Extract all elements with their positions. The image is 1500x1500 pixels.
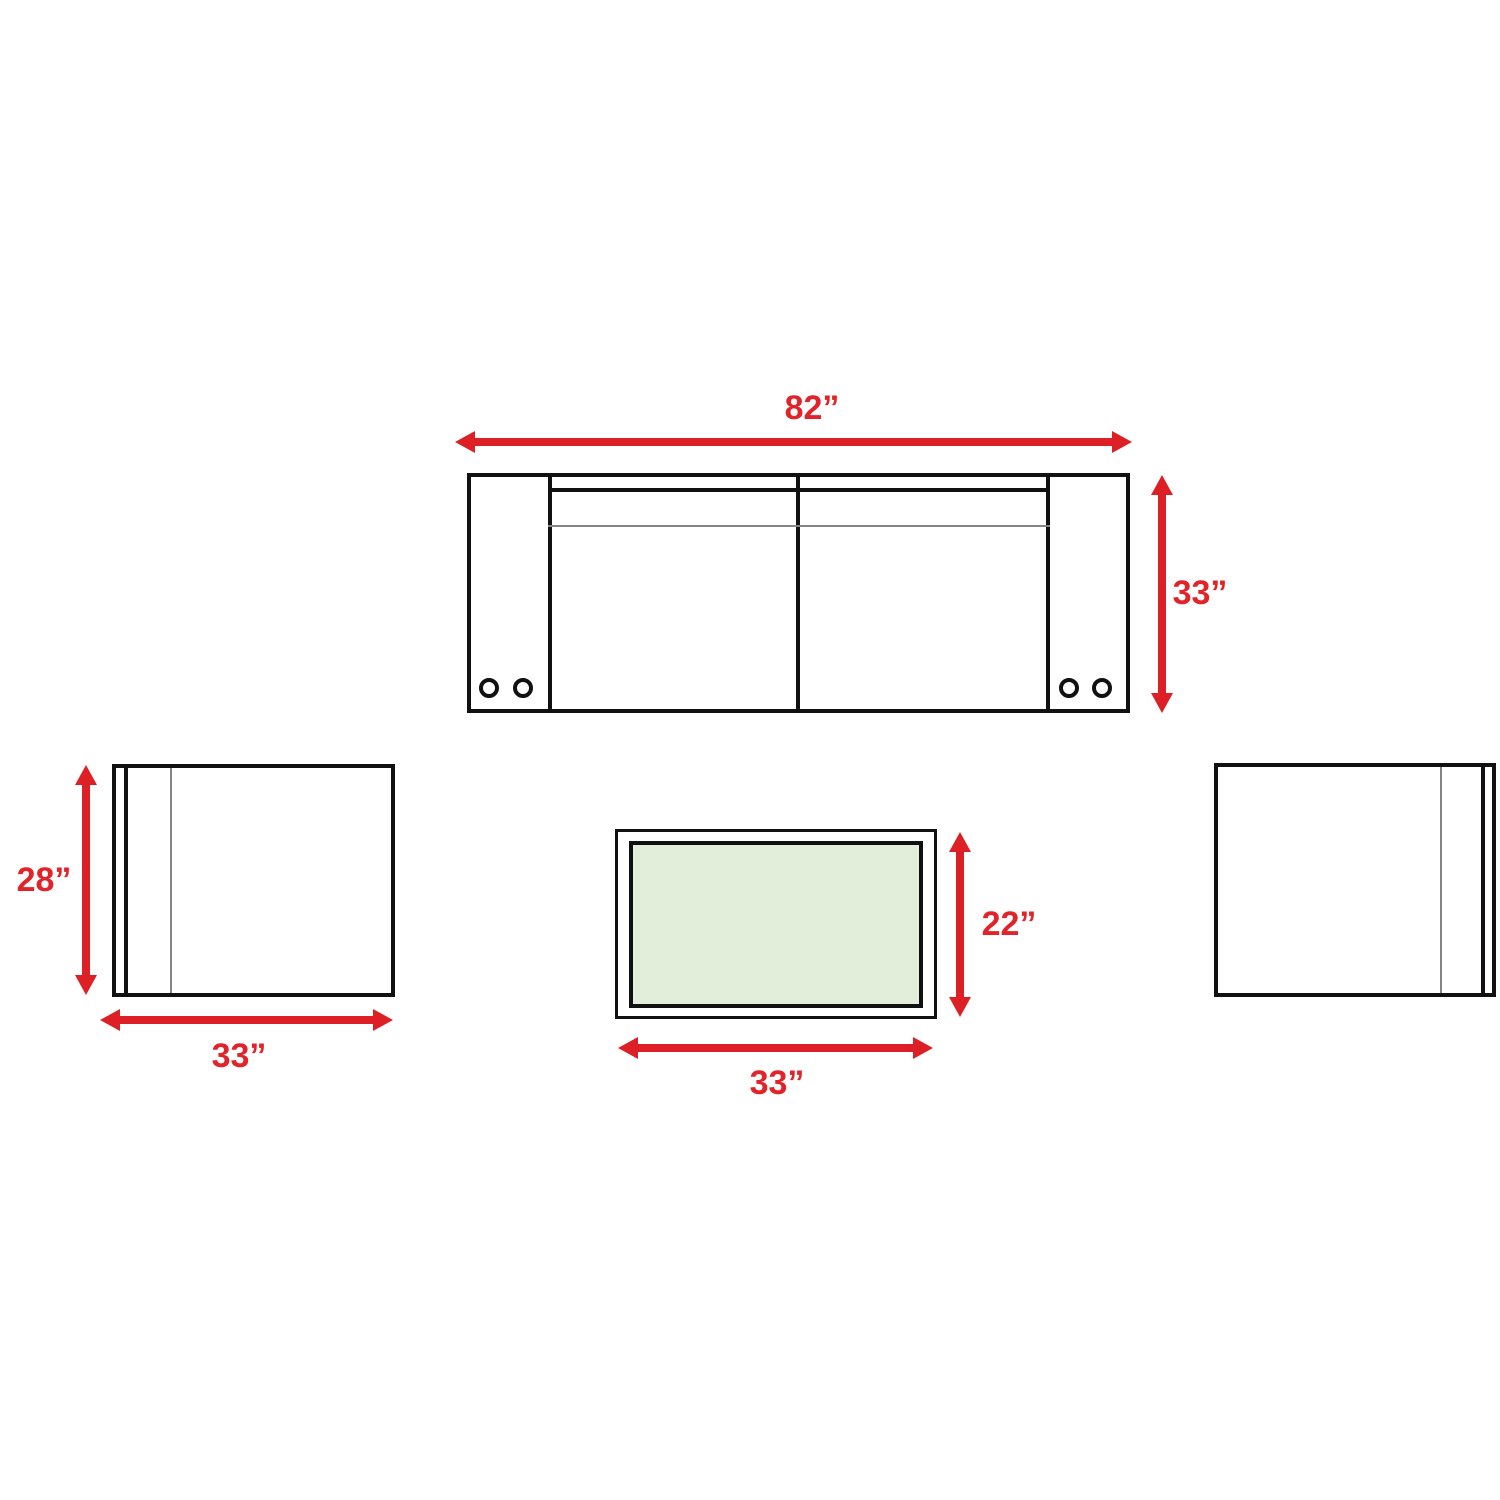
- right-chair-seat-edge-line: [1440, 767, 1442, 993]
- sofa-right-arm-cupholder-2-icon: [1092, 678, 1112, 698]
- sofa-backrest-line: [548, 488, 1050, 492]
- coffee-table-width-label: 33”: [750, 1066, 805, 1100]
- sofa-seat-edge-line: [548, 525, 1050, 527]
- left-chair-width-label: 33”: [212, 1039, 267, 1073]
- arrowhead-up-icon: [1151, 475, 1173, 495]
- arrowhead-up-icon: [949, 832, 971, 852]
- sofa-left-arm-cupholder-1-icon: [479, 678, 499, 698]
- arrowhead-down-icon: [949, 997, 971, 1017]
- sofa-width-dimension-arrow: [455, 431, 1132, 453]
- left-chair-arm-line: [124, 768, 128, 993]
- arrowhead-up-icon: [75, 765, 97, 785]
- left-chair-depth-label: 28”: [17, 863, 72, 897]
- left-chair-seat-edge-line: [170, 768, 172, 993]
- arrowhead-down-icon: [75, 975, 97, 995]
- coffee-table-width-dimension-arrow: [618, 1037, 933, 1059]
- arrowhead-right-icon: [1112, 431, 1132, 453]
- arrowhead-left-icon: [455, 431, 475, 453]
- arrowhead-down-icon: [1151, 693, 1173, 713]
- sofa-right-arm-cupholder-1-icon: [1059, 678, 1079, 698]
- sofa-depth-label: 33”: [1173, 576, 1228, 610]
- sofa-right-arm-line: [1046, 477, 1050, 709]
- sofa-width-label: 82”: [785, 391, 840, 425]
- right-chair-arm-line: [1481, 767, 1485, 993]
- coffee-table-glass-top: [629, 841, 923, 1008]
- arrowhead-right-icon: [373, 1009, 393, 1031]
- sofa-depth-dimension-arrow: [1151, 475, 1173, 713]
- right-chair-top-view: [1214, 763, 1496, 997]
- coffee-table-depth-dimension-arrow: [949, 832, 971, 1017]
- arrowhead-left-icon: [618, 1037, 638, 1059]
- arrowhead-left-icon: [100, 1009, 120, 1031]
- arrowhead-right-icon: [913, 1037, 933, 1059]
- furniture-dimension-diagram: 82” 33” 28” 33” 22” 33”: [0, 0, 1500, 1500]
- sofa-top-view: [467, 473, 1130, 713]
- left-chair-top-view: [112, 764, 395, 997]
- left-chair-width-dimension-arrow: [100, 1009, 393, 1031]
- left-chair-depth-dimension-arrow: [75, 765, 97, 995]
- coffee-table-depth-label: 22”: [982, 907, 1037, 941]
- sofa-left-arm-cupholder-2-icon: [513, 678, 533, 698]
- sofa-seat-divider-line: [796, 477, 800, 709]
- sofa-left-arm-line: [548, 477, 552, 709]
